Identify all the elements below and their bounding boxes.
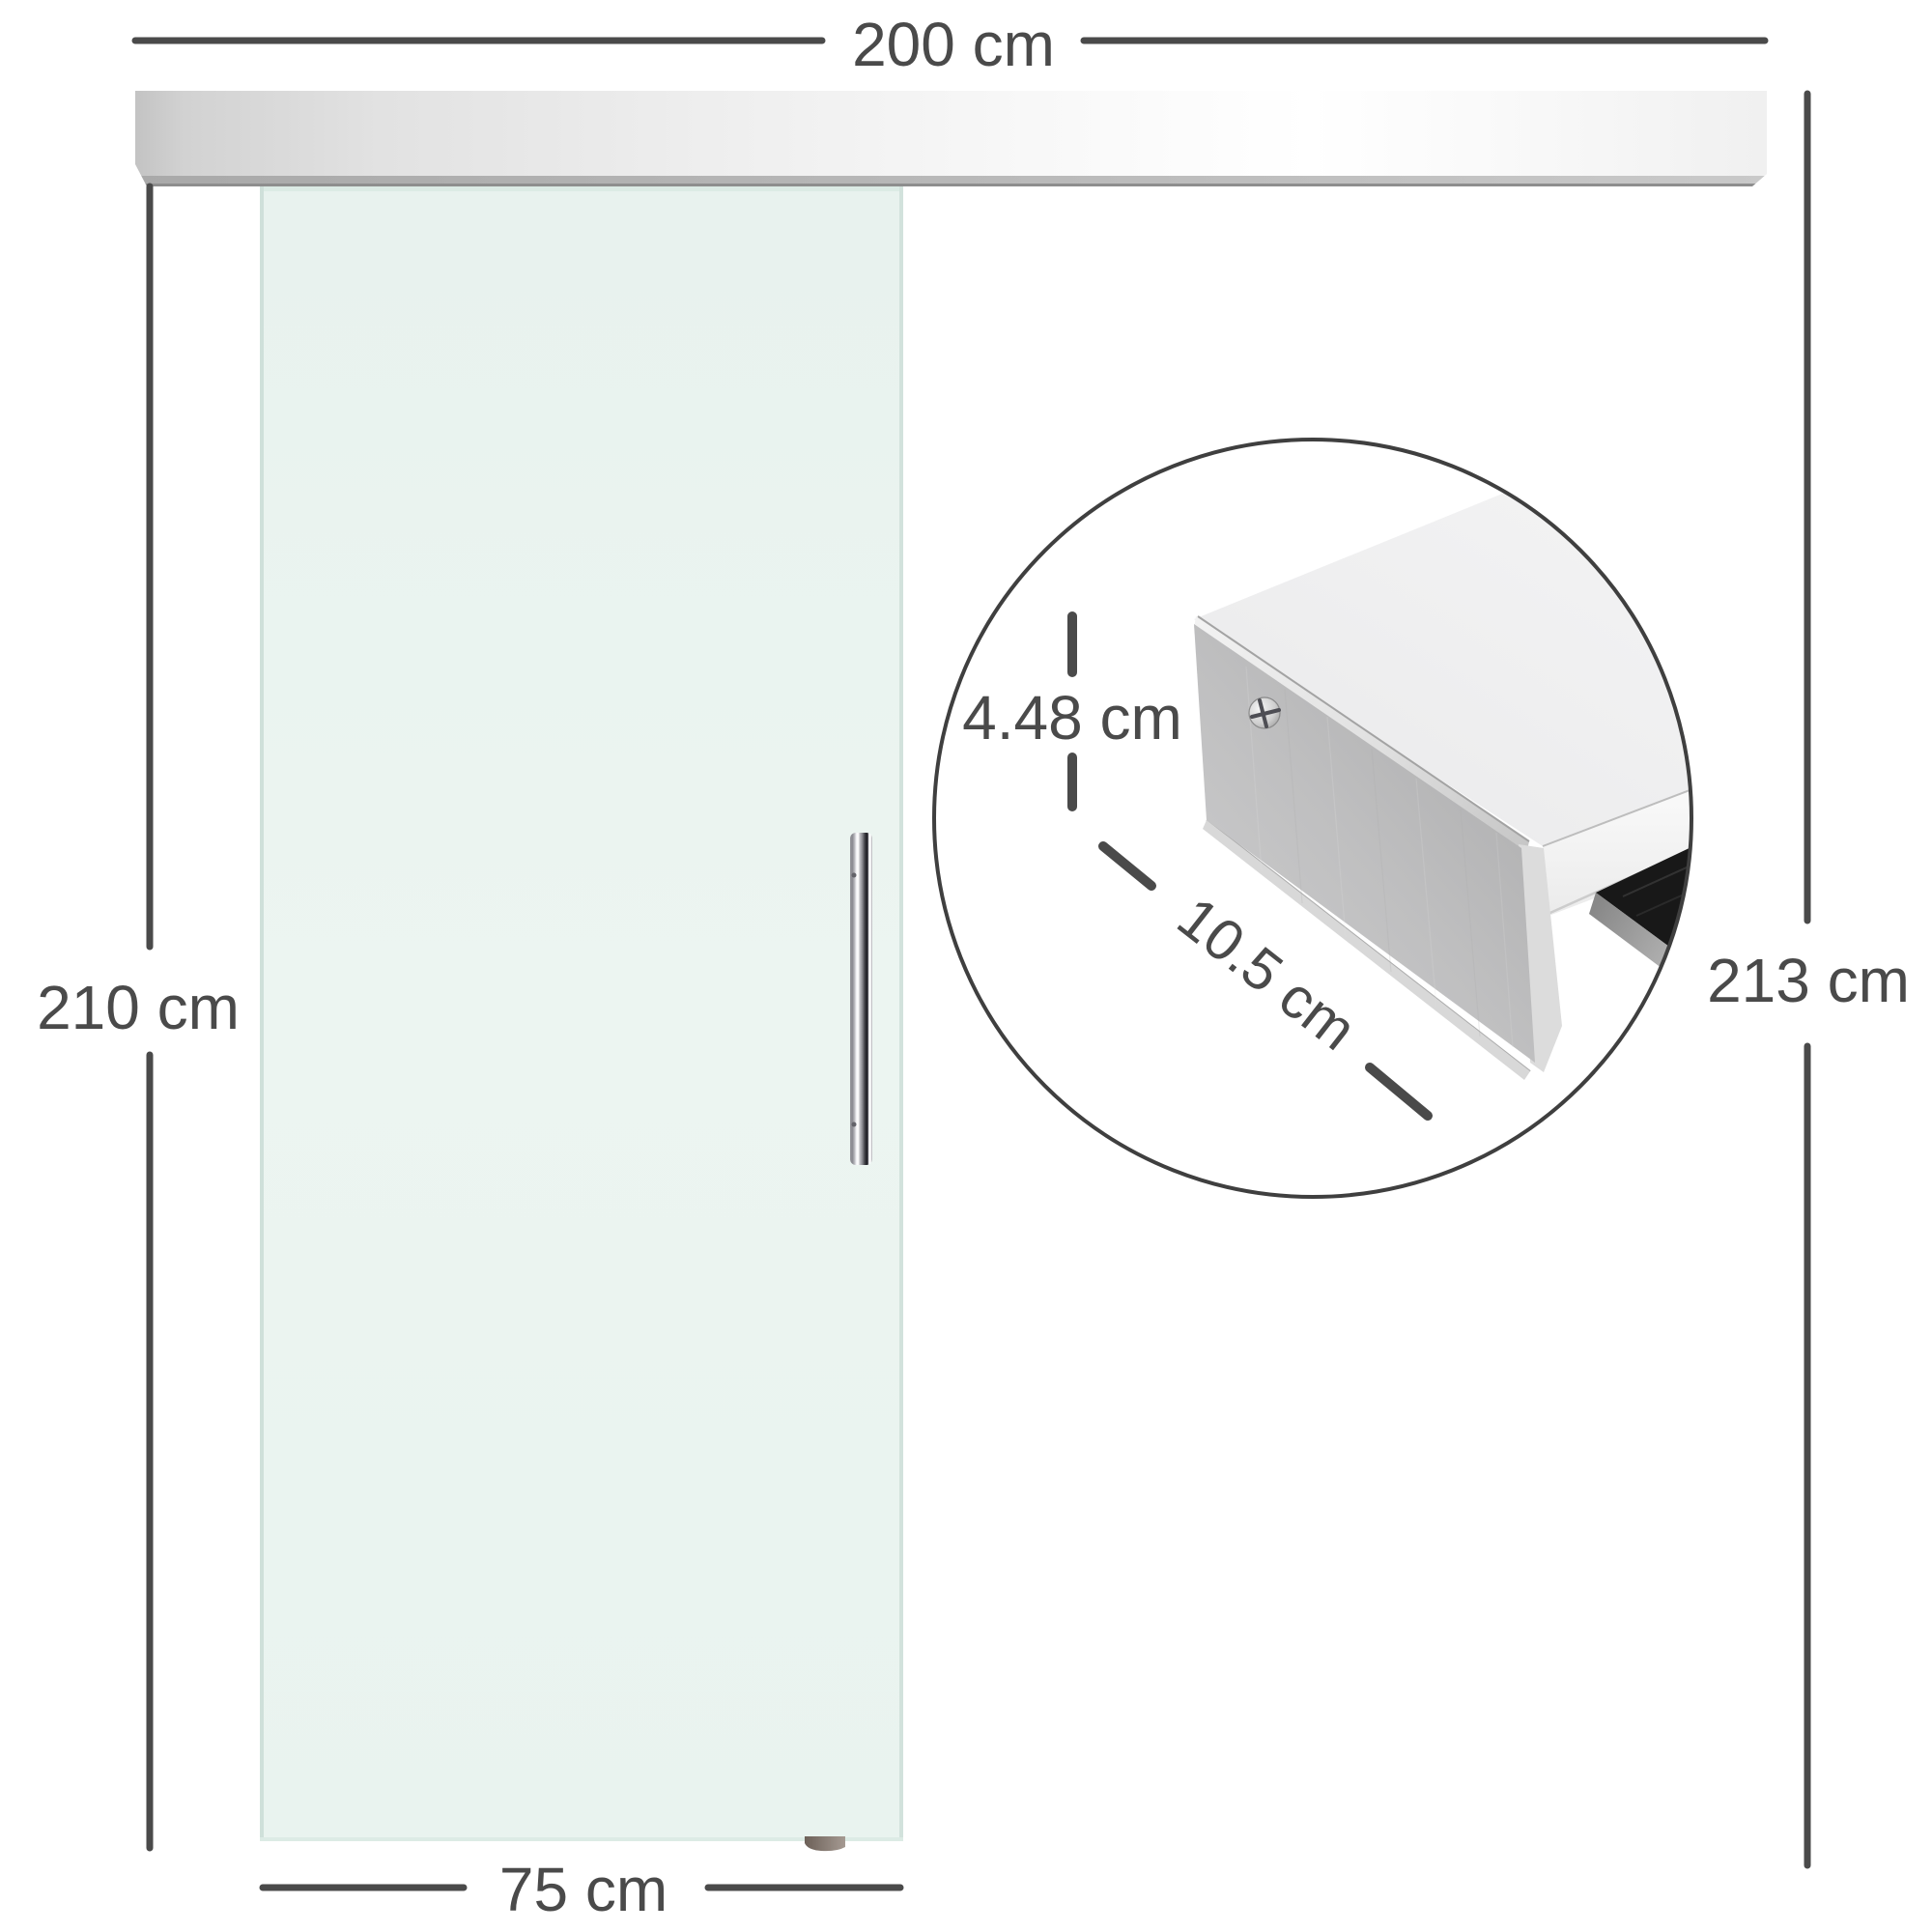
svg-text:210 cm: 210 cm	[37, 973, 240, 1042]
svg-text:213 cm: 213 cm	[1707, 946, 1910, 1015]
svg-text:4.48 cm: 4.48 cm	[962, 683, 1182, 753]
svg-text:75 cm: 75 cm	[499, 1855, 668, 1924]
svg-text:200 cm: 200 cm	[852, 10, 1055, 79]
